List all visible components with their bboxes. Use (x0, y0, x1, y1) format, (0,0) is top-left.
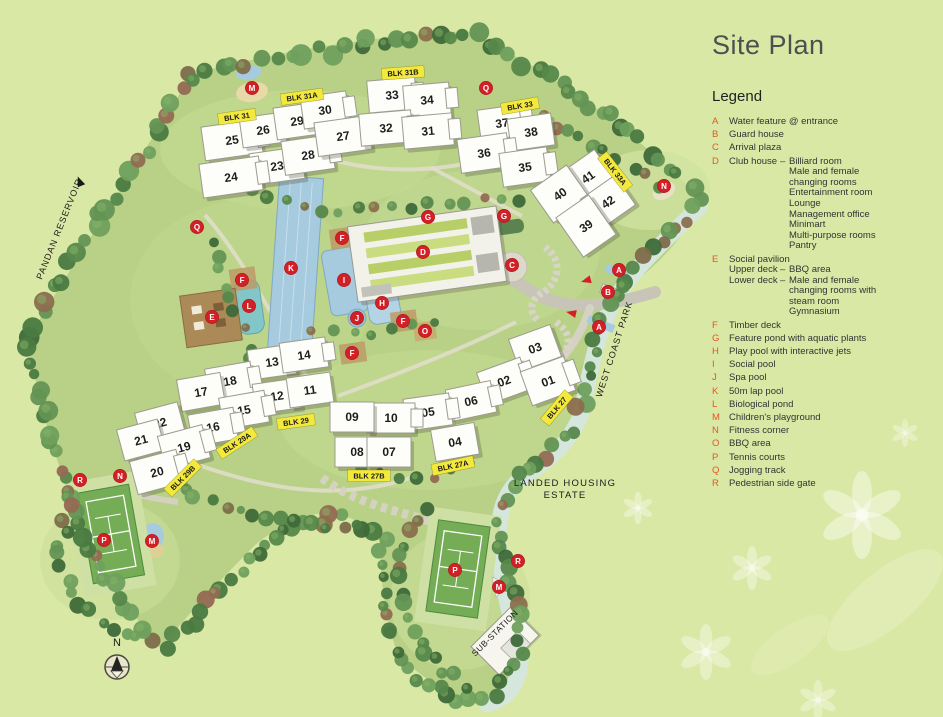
legend-text: Pedestrian side gate (729, 479, 940, 490)
svg-text:A: A (616, 266, 622, 275)
building-number: 31 (421, 124, 436, 139)
building-number: 32 (379, 121, 394, 136)
legend-text: Play pool with interactive jets (729, 347, 940, 358)
legend-text: Timber deck (729, 321, 940, 332)
map-marker-C: C (505, 258, 518, 271)
legend-item-C: CArrival plaza (712, 143, 940, 154)
map-text: LANDED HOUSING (514, 478, 616, 489)
svg-text:F: F (340, 234, 345, 243)
legend-text: Jogging track (729, 466, 940, 477)
legend-panel: Site Plan Legend AWater feature @ entran… (712, 30, 940, 492)
map-marker-G: G (421, 210, 434, 223)
building-number: 33 (385, 88, 400, 103)
legend-text: Children's playground (729, 413, 940, 424)
building-number: 25 (224, 132, 239, 148)
legend-key: M (712, 413, 729, 424)
legend-text: Water feature @ entrance (729, 117, 940, 128)
svg-text:M: M (496, 583, 503, 592)
legend-key: E (712, 255, 729, 266)
map-marker-R: R (511, 554, 524, 567)
map-marker-A: A (612, 263, 625, 276)
map-text: ESTATE (544, 490, 587, 501)
building-block-09: 09 (330, 402, 377, 436)
legend-key: O (712, 439, 729, 450)
svg-text:F: F (240, 276, 245, 285)
legend-key: Q (712, 466, 729, 477)
building-number: 10 (384, 411, 398, 425)
building-number: 09 (345, 410, 359, 424)
legend-key: F (712, 321, 729, 332)
legend-text: Biological pond (729, 400, 940, 411)
legend-item-A: AWater feature @ entrance (712, 117, 940, 128)
map-marker-K: K (284, 261, 297, 274)
legend-key: H (712, 347, 729, 358)
legend-key: P (712, 453, 729, 464)
page-title: Site Plan (712, 30, 940, 61)
svg-text:J: J (355, 314, 359, 323)
legend-subrow: Gymnasium (789, 307, 940, 318)
legend-heading: Legend (712, 88, 940, 105)
legend-item-D: DClub house–Billiard roomMale and female… (712, 157, 940, 252)
map-marker-A: A (592, 320, 605, 333)
map-marker-M: M (245, 81, 258, 94)
svg-text:Q: Q (194, 223, 200, 232)
svg-text:H: H (379, 299, 385, 308)
svg-text:N: N (661, 182, 667, 191)
legend-item-B: BGuard house (712, 130, 940, 141)
legend-item-J: JSpa pool (712, 373, 940, 384)
svg-text:G: G (425, 213, 431, 222)
svg-text:O: O (422, 327, 428, 336)
legend-subrow: Male and femalechanging rooms withsteam … (789, 276, 940, 308)
building-number: 23 (269, 158, 284, 174)
map-marker-H: H (375, 296, 388, 309)
legend-key: I (712, 360, 729, 371)
building-number: 13 (264, 354, 279, 370)
legend-text: BBQ area (729, 439, 940, 450)
building-number: 14 (296, 347, 311, 363)
map-marker-P: P (97, 533, 110, 546)
legend-label: Club house (729, 157, 780, 168)
map-marker-M: M (492, 580, 505, 593)
legend-text: Arrival plaza (729, 143, 940, 154)
map-marker-I: I (337, 273, 350, 286)
map-marker-P: P (448, 563, 461, 576)
building-number: 38 (523, 124, 538, 140)
svg-text:BLK 27B: BLK 27B (353, 471, 385, 480)
legend-item-M: MChildren's playground (712, 413, 940, 424)
svg-text:E: E (209, 313, 215, 322)
svg-text:P: P (101, 536, 107, 545)
svg-text:L: L (247, 302, 252, 311)
legend-key: R (712, 479, 729, 490)
building-number: 17 (193, 384, 209, 400)
svg-text:R: R (515, 557, 521, 566)
map-marker-G: G (497, 209, 510, 222)
map-marker-M: M (145, 534, 158, 547)
building-number: 30 (317, 102, 332, 118)
legend-items: AWater feature @ entranceBGuard houseCAr… (712, 117, 940, 490)
svg-text:K: K (288, 264, 294, 273)
building-number: 36 (476, 145, 491, 161)
svg-text:F: F (350, 349, 355, 358)
legend-key: N (712, 426, 729, 437)
svg-text:D: D (420, 248, 426, 257)
legend-subrow: Lower deck (729, 276, 780, 287)
map-marker-F: F (396, 314, 409, 327)
site-plan-page: 2526232429302827333432313738363541404239… (0, 0, 943, 717)
legend-key: C (712, 143, 729, 154)
map-marker-F: F (235, 273, 248, 286)
legend-item-G: GFeature pond with aquatic plants (712, 334, 940, 345)
legend-key: G (712, 334, 729, 345)
svg-text:N: N (113, 637, 121, 649)
building-number: 04 (447, 434, 463, 450)
legend-text: Feature pond with aquatic plants (729, 334, 940, 345)
building-number: 07 (382, 445, 396, 459)
legend-text: Fitness corner (729, 426, 940, 437)
compass-icon (105, 655, 129, 679)
svg-text:B: B (605, 288, 611, 297)
legend-text: Guard house (729, 130, 940, 141)
legend-text: Social pool (729, 360, 940, 371)
map-marker-B: B (601, 285, 614, 298)
legend-key: J (712, 373, 729, 384)
building-number: 27 (335, 128, 350, 144)
legend-dash: – (780, 157, 789, 168)
map-marker-N: N (657, 179, 670, 192)
legend-item-Q: QJogging track (712, 466, 940, 477)
legend-item-R: RPedestrian side gate (712, 479, 940, 490)
legend-item-L: LBiological pond (712, 400, 940, 411)
svg-text:R: R (77, 476, 83, 485)
svg-text:M: M (149, 537, 156, 546)
map-marker-N: N (113, 469, 126, 482)
legend-item-K: K50m lap pool (712, 387, 940, 398)
legend-item-P: PTennis courts (712, 453, 940, 464)
svg-text:N: N (117, 472, 123, 481)
legend-key: K (712, 387, 729, 398)
legend-item-I: ISocial pool (712, 360, 940, 371)
map-marker-R: R (73, 473, 86, 486)
legend-key: D (712, 157, 729, 168)
svg-text:C: C (509, 261, 515, 270)
svg-text:Q: Q (483, 84, 489, 93)
legend-key: A (712, 117, 729, 128)
map-marker-J: J (350, 311, 363, 324)
building-number: 11 (303, 382, 318, 398)
legend-key: L (712, 400, 729, 411)
svg-text:M: M (249, 84, 256, 93)
legend-key: B (712, 130, 729, 141)
svg-text:A: A (596, 323, 602, 332)
map-marker-D: D (416, 245, 429, 258)
map-marker-L: L (242, 299, 255, 312)
legend-item-F: FTimber deck (712, 321, 940, 332)
building-number: 08 (350, 445, 364, 459)
map-marker-Q: Q (190, 220, 203, 233)
building-number: 26 (255, 122, 270, 138)
legend-item-H: HPlay pool with interactive jets (712, 347, 940, 358)
svg-text:F: F (401, 317, 406, 326)
building-number: 28 (300, 147, 315, 163)
svg-text:G: G (501, 212, 507, 221)
map-marker-F: F (345, 346, 358, 359)
svg-text:P: P (452, 566, 458, 575)
svg-text:ESTATE: ESTATE (544, 490, 587, 501)
legend-text: Tennis courts (729, 453, 940, 464)
legend-item-N: NFitness corner (712, 426, 940, 437)
legend-subrow: – (780, 276, 789, 287)
legend-item-E: ESocial pavilionUpper deck–BBQ areaLower… (712, 255, 940, 319)
building-block-31: 31 (402, 112, 463, 153)
building-number: 24 (223, 169, 238, 185)
blk-label: BLK 27B (348, 470, 391, 482)
building-number: 35 (517, 159, 532, 175)
legend-text: Spa pool (729, 373, 940, 384)
map-marker-O: O (418, 324, 431, 337)
legend-text: 50m lap pool (729, 387, 940, 398)
legend-details: Billiard roomMale and femalechanging roo… (789, 157, 940, 252)
svg-text:LANDED HOUSING: LANDED HOUSING (514, 478, 616, 489)
map-marker-E: E (205, 310, 218, 323)
building-block-07: 07 (367, 437, 414, 471)
map-text: N (113, 637, 121, 649)
legend-item-O: OBBQ area (712, 439, 940, 450)
svg-text:I: I (343, 276, 345, 285)
building-number: 34 (420, 93, 435, 108)
map-marker-F: F (335, 231, 348, 244)
map-marker-Q: Q (479, 81, 492, 94)
